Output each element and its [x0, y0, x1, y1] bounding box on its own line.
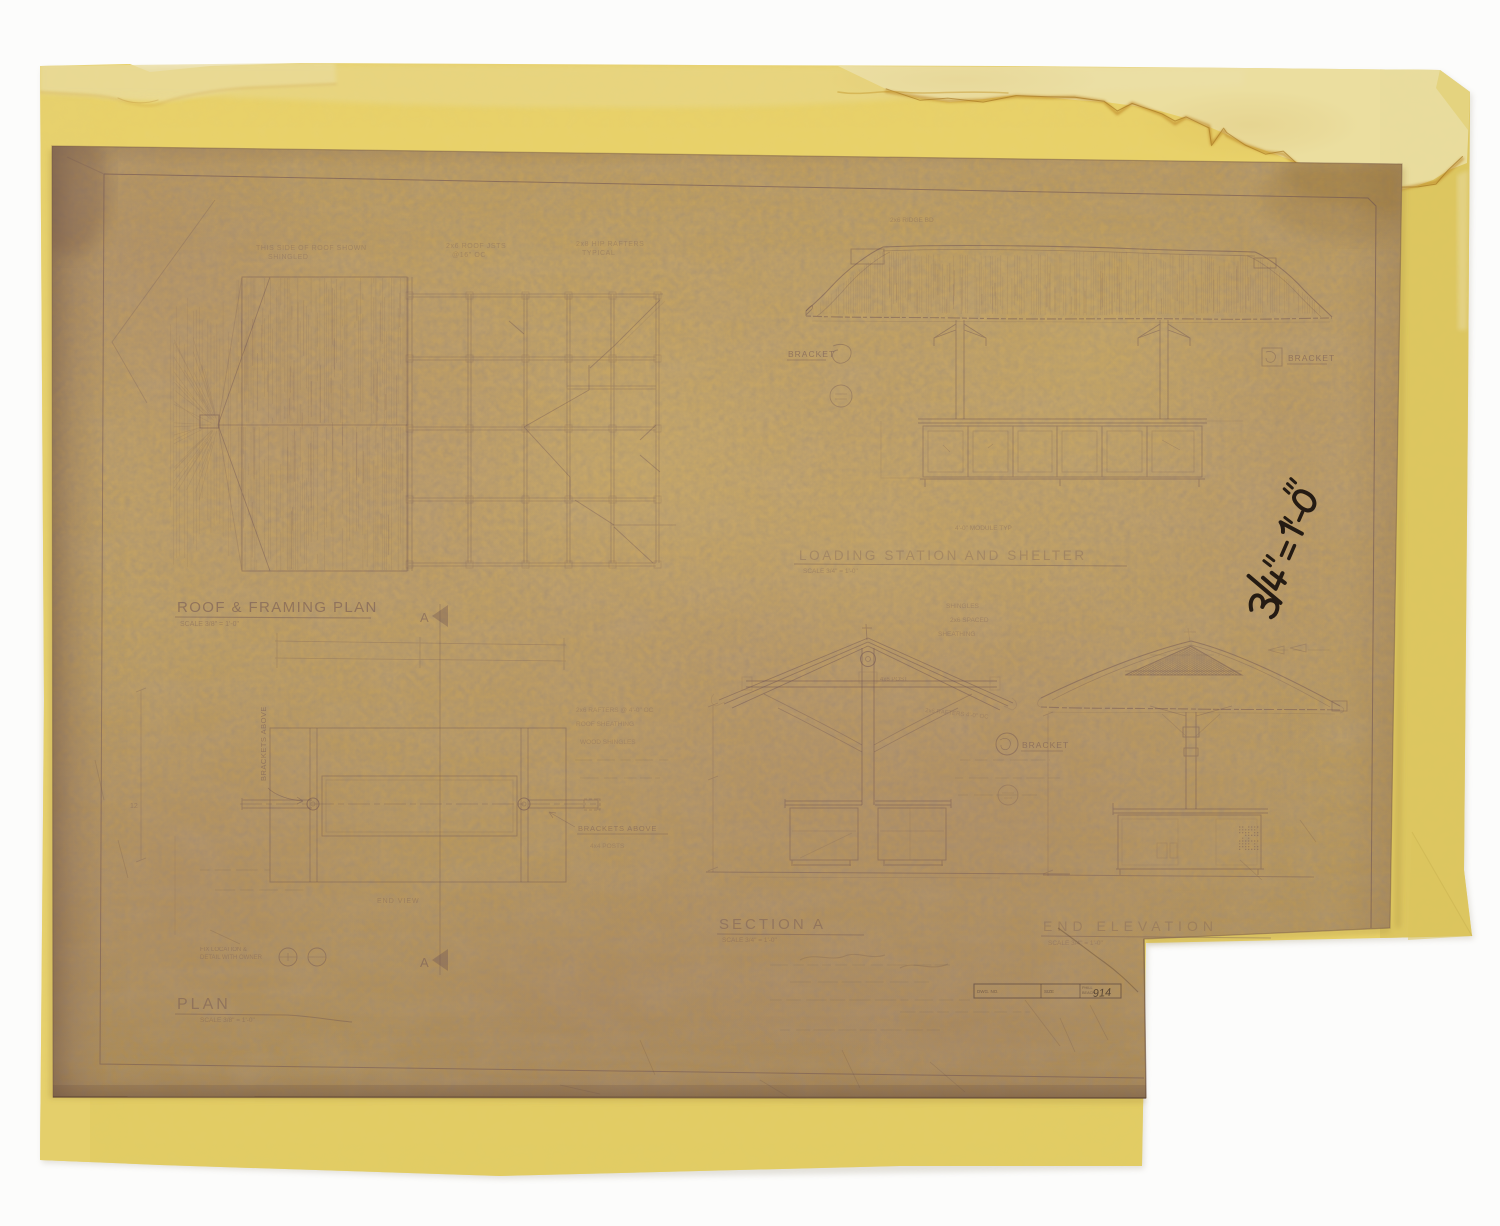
- svg-text:SCALE 3/8" = 1'-0": SCALE 3/8" = 1'-0": [200, 1017, 256, 1024]
- svg-text:ROOF SHEATHING: ROOF SHEATHING: [576, 721, 634, 728]
- svg-text:END ELEVATION: END ELEVATION: [1043, 918, 1218, 934]
- svg-text:SHEATHING: SHEATHING: [938, 631, 975, 638]
- svg-text:BRACKET: BRACKET: [788, 349, 835, 359]
- svg-text:4x4 POSTS: 4x4 POSTS: [590, 843, 625, 850]
- svg-text:2x6 SPACED: 2x6 SPACED: [950, 617, 989, 624]
- svg-text:914: 914: [1092, 987, 1111, 1000]
- svg-text:@16" OC: @16" OC: [452, 252, 486, 259]
- svg-text:2x6 RAFTERS @ 4'-0" OC: 2x6 RAFTERS @ 4'-0" OC: [576, 707, 654, 714]
- svg-text:LOADING STATION AND SHELTER: LOADING STATION AND SHELTER: [799, 548, 1087, 563]
- svg-text:DETAIL WITH OWNER: DETAIL WITH OWNER: [200, 955, 263, 961]
- svg-text:BRACKET: BRACKET: [1288, 353, 1335, 363]
- svg-text:4x6 POST: 4x6 POST: [880, 677, 908, 683]
- svg-text:12: 12: [130, 803, 138, 810]
- svg-text:SCALE 3/4" = 1'-0": SCALE 3/4" = 1'-0": [722, 937, 778, 944]
- svg-text:2x6 ROOF JSTS: 2x6 ROOF JSTS: [446, 243, 506, 250]
- svg-text:2x8 HIP RAFTERS: 2x8 HIP RAFTERS: [576, 241, 644, 248]
- svg-text:SHINGLED: SHINGLED: [268, 254, 309, 261]
- svg-text:BRACKETS ABOVE: BRACKETS ABOVE: [259, 706, 268, 781]
- svg-text:A: A: [420, 955, 429, 970]
- svg-text:4'-0" MODULE TYP: 4'-0" MODULE TYP: [955, 525, 1012, 532]
- svg-text:END VIEW: END VIEW: [377, 898, 420, 905]
- svg-text:SCALE 3/8" = 1'-0": SCALE 3/8" = 1'-0": [180, 621, 240, 628]
- svg-text:A: A: [420, 610, 429, 625]
- svg-text:WOOD SHINGLES: WOOD SHINGLES: [580, 739, 636, 746]
- svg-text:THIS SIDE OF ROOF SHOWN: THIS SIDE OF ROOF SHOWN: [256, 245, 367, 252]
- svg-text:PHILL: PHILL: [1082, 986, 1093, 990]
- svg-text:TYPICAL: TYPICAL: [582, 250, 615, 257]
- svg-text:PLAN: PLAN: [177, 996, 231, 1013]
- svg-text:ROOF & FRAMING PLAN: ROOF & FRAMING PLAN: [177, 599, 378, 616]
- svg-text:2x6 RIDGE BD: 2x6 RIDGE BD: [890, 217, 934, 224]
- svg-text:SECTION A: SECTION A: [719, 916, 826, 933]
- svg-text:BRACKET: BRACKET: [1022, 740, 1069, 750]
- svg-text:SCALE 3/4" = 1'-0": SCALE 3/4" = 1'-0": [803, 568, 859, 575]
- svg-text:SIZE: SIZE: [1044, 989, 1054, 994]
- svg-text:BRACKETS ABOVE: BRACKETS ABOVE: [578, 824, 657, 833]
- svg-text:DWG. NO.: DWG. NO.: [977, 989, 999, 994]
- svg-text:FIX LOCATION &: FIX LOCATION &: [200, 947, 247, 953]
- svg-text:SHINGLES: SHINGLES: [946, 603, 980, 610]
